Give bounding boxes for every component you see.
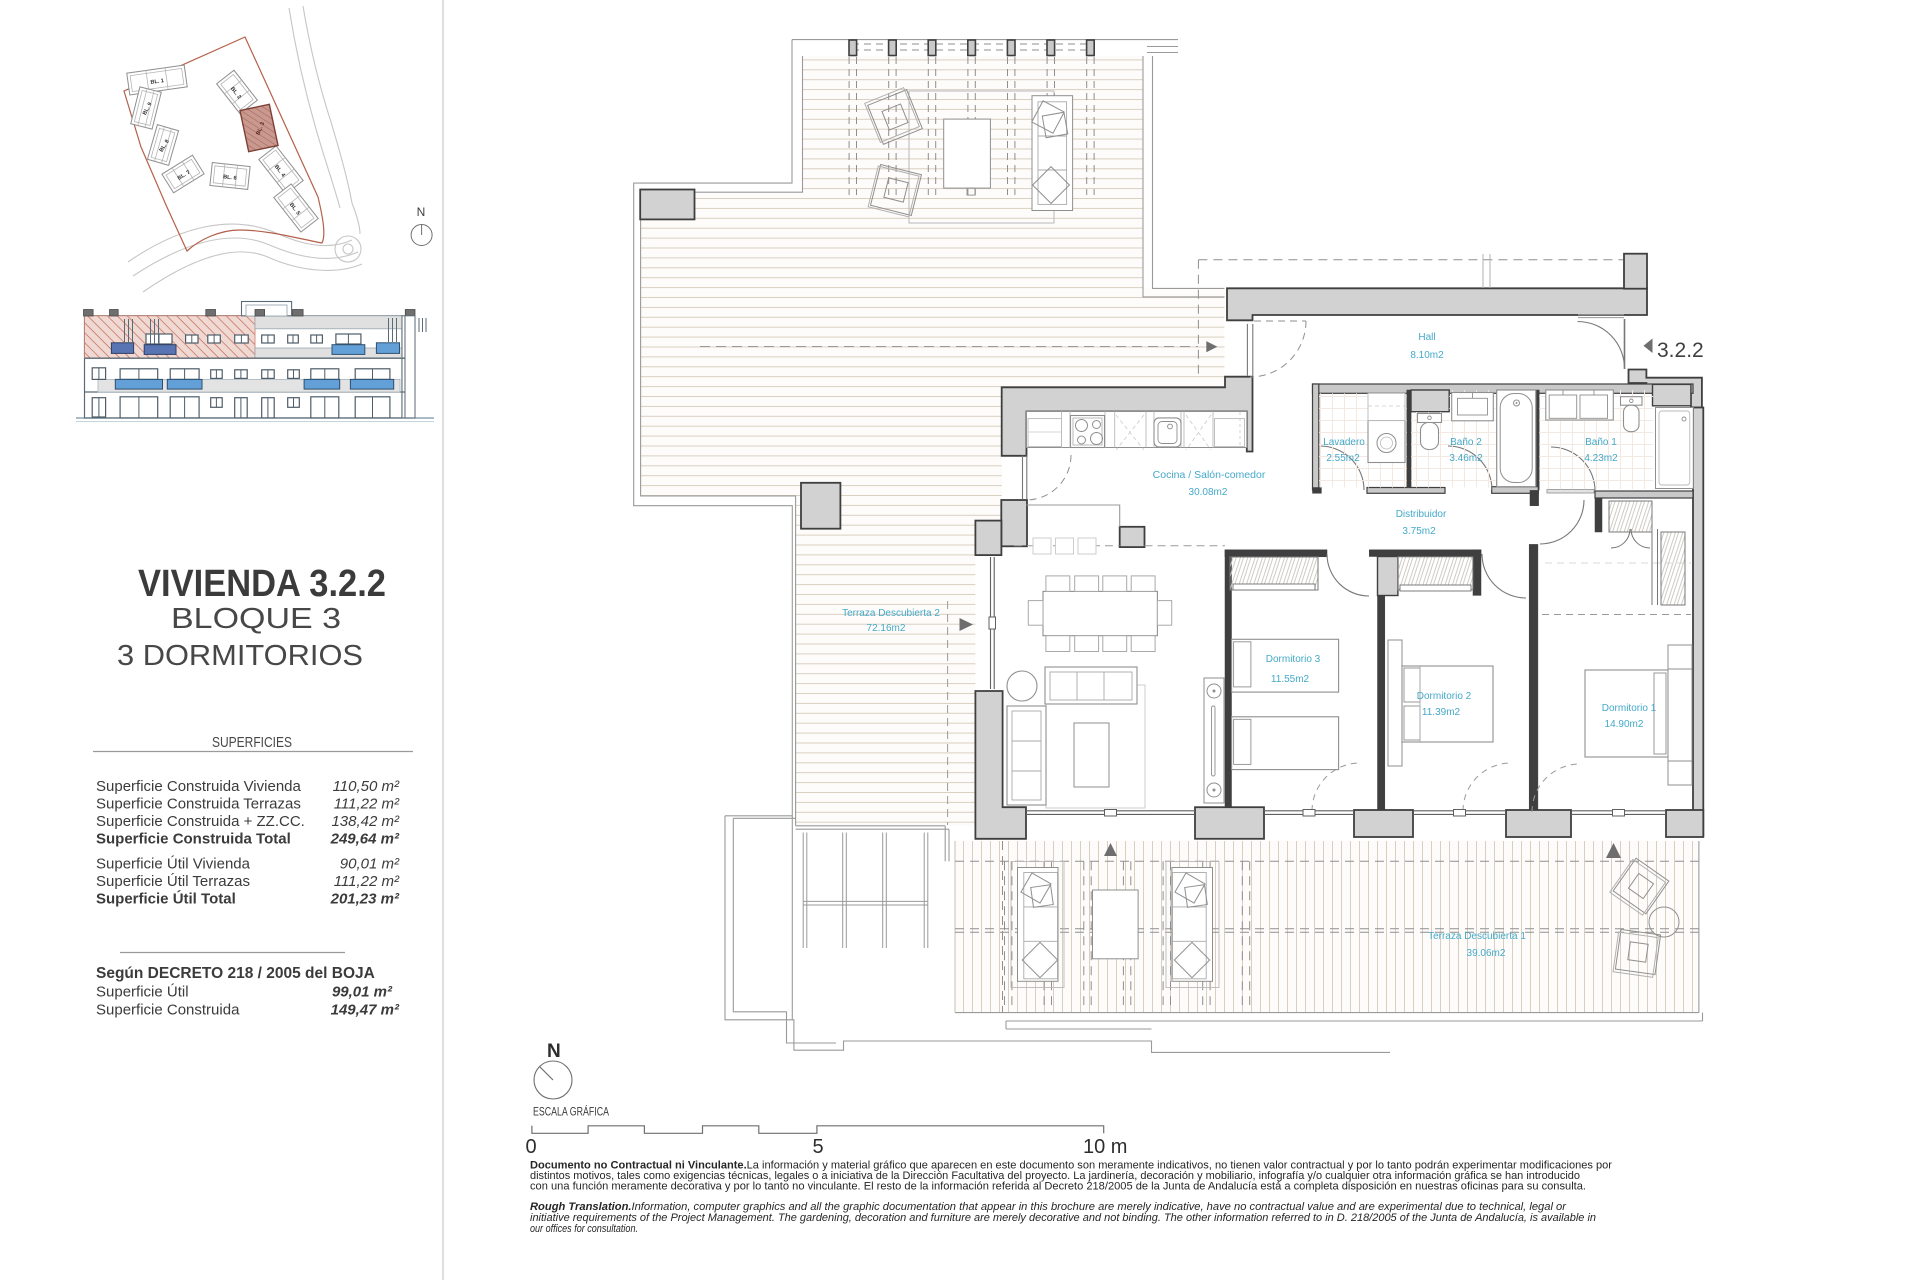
svg-text:Dormitorio 3: Dormitorio 3 <box>1266 654 1321 665</box>
svg-text:con una función meramente deco: con una función meramente decorativa y p… <box>530 1181 1586 1193</box>
svg-text:0: 0 <box>525 1136 536 1158</box>
svg-text:Superficie Construida Terrazas: Superficie Construida Terrazas <box>96 796 301 813</box>
svg-text:111,22 m²: 111,22 m² <box>334 796 400 813</box>
svg-text:90,01 m²: 90,01 m² <box>340 856 400 873</box>
svg-text:initiative requirements of the: initiative requirements of the Project M… <box>530 1212 1596 1224</box>
svg-text:Terraza Descubierta 1: Terraza Descubierta 1 <box>1428 931 1526 942</box>
svg-text:Superficie Útil Terrazas: Superficie Útil Terrazas <box>96 873 250 890</box>
svg-text:Superficie Construida Total: Superficie Construida Total <box>96 831 291 848</box>
svg-text:SUPERFICIES: SUPERFICIES <box>212 734 292 751</box>
svg-text:3.46m2: 3.46m2 <box>1449 453 1483 464</box>
svg-text:30.08m2: 30.08m2 <box>1189 487 1228 498</box>
svg-text:Distribuidor: Distribuidor <box>1396 509 1447 520</box>
svg-text:Hall: Hall <box>1418 332 1435 343</box>
svg-text:Superficie Construida: Superficie Construida <box>96 1002 240 1019</box>
svg-text:11.39m2: 11.39m2 <box>1422 707 1461 718</box>
svg-text:3.2.2: 3.2.2 <box>1657 339 1704 362</box>
svg-text:Terraza Descubierta 2: Terraza Descubierta 2 <box>842 608 940 619</box>
svg-text:Lavadero: Lavadero <box>1323 437 1365 448</box>
svg-text:99,01 m²: 99,01 m² <box>332 984 393 1001</box>
svg-text:Cocina / Salón-comedor: Cocina / Salón-comedor <box>1153 469 1266 481</box>
svg-text:N: N <box>417 205 426 219</box>
svg-text:72.16m2: 72.16m2 <box>867 623 906 634</box>
svg-text:39.06m2: 39.06m2 <box>1467 948 1506 959</box>
svg-text:Superficie Construida Vivienda: Superficie Construida Vivienda <box>96 778 302 795</box>
svg-text:8.10m2: 8.10m2 <box>1410 350 1444 361</box>
svg-text:BLOQUE 3: BLOQUE 3 <box>171 603 341 635</box>
svg-text:Superficie Útil Total: Superficie Útil Total <box>96 890 236 908</box>
svg-text:Baño 1: Baño 1 <box>1585 437 1617 448</box>
svg-text:138,42 m²: 138,42 m² <box>331 813 400 830</box>
svg-text:201,23 m²: 201,23 m² <box>330 891 400 908</box>
svg-text:149,47 m²: 149,47 m² <box>331 1002 400 1019</box>
svg-text:3.75m2: 3.75m2 <box>1402 526 1436 537</box>
svg-text:5: 5 <box>812 1136 823 1158</box>
svg-text:Superficie Útil: Superficie Útil <box>96 984 189 1001</box>
svg-text:11.55m2: 11.55m2 <box>1271 674 1310 685</box>
svg-text:our offices for consultation.: our offices for consultation. <box>530 1223 638 1235</box>
svg-text:VIVIENDA 3.2.2: VIVIENDA 3.2.2 <box>138 563 386 605</box>
svg-text:249,64 m²: 249,64 m² <box>330 831 400 848</box>
svg-text:Según DECRETO 218 / 2005 del B: Según DECRETO 218 / 2005 del BOJA <box>96 965 375 982</box>
svg-text:111,22 m²: 111,22 m² <box>334 873 400 890</box>
svg-text:Baño 2: Baño 2 <box>1450 437 1482 448</box>
svg-text:4.23m2: 4.23m2 <box>1584 453 1618 464</box>
svg-text:Dormitorio 2: Dormitorio 2 <box>1417 691 1472 702</box>
svg-text:Dormitorio 1: Dormitorio 1 <box>1602 703 1657 714</box>
svg-text:2.55m2: 2.55m2 <box>1326 453 1360 464</box>
svg-text:10 m: 10 m <box>1083 1136 1127 1158</box>
svg-text:Superficie Útil Vivienda: Superficie Útil Vivienda <box>96 856 251 873</box>
svg-text:3 DORMITORIOS: 3 DORMITORIOS <box>117 640 363 672</box>
svg-text:N: N <box>547 1041 561 1062</box>
svg-text:110,50 m²: 110,50 m² <box>333 778 400 795</box>
svg-text:14.90m2: 14.90m2 <box>1605 719 1644 730</box>
svg-text:Superficie Construida + ZZ.CC.: Superficie Construida + ZZ.CC. <box>96 813 305 830</box>
svg-text:ESCALA GRÁFICA: ESCALA GRÁFICA <box>533 1106 609 1119</box>
